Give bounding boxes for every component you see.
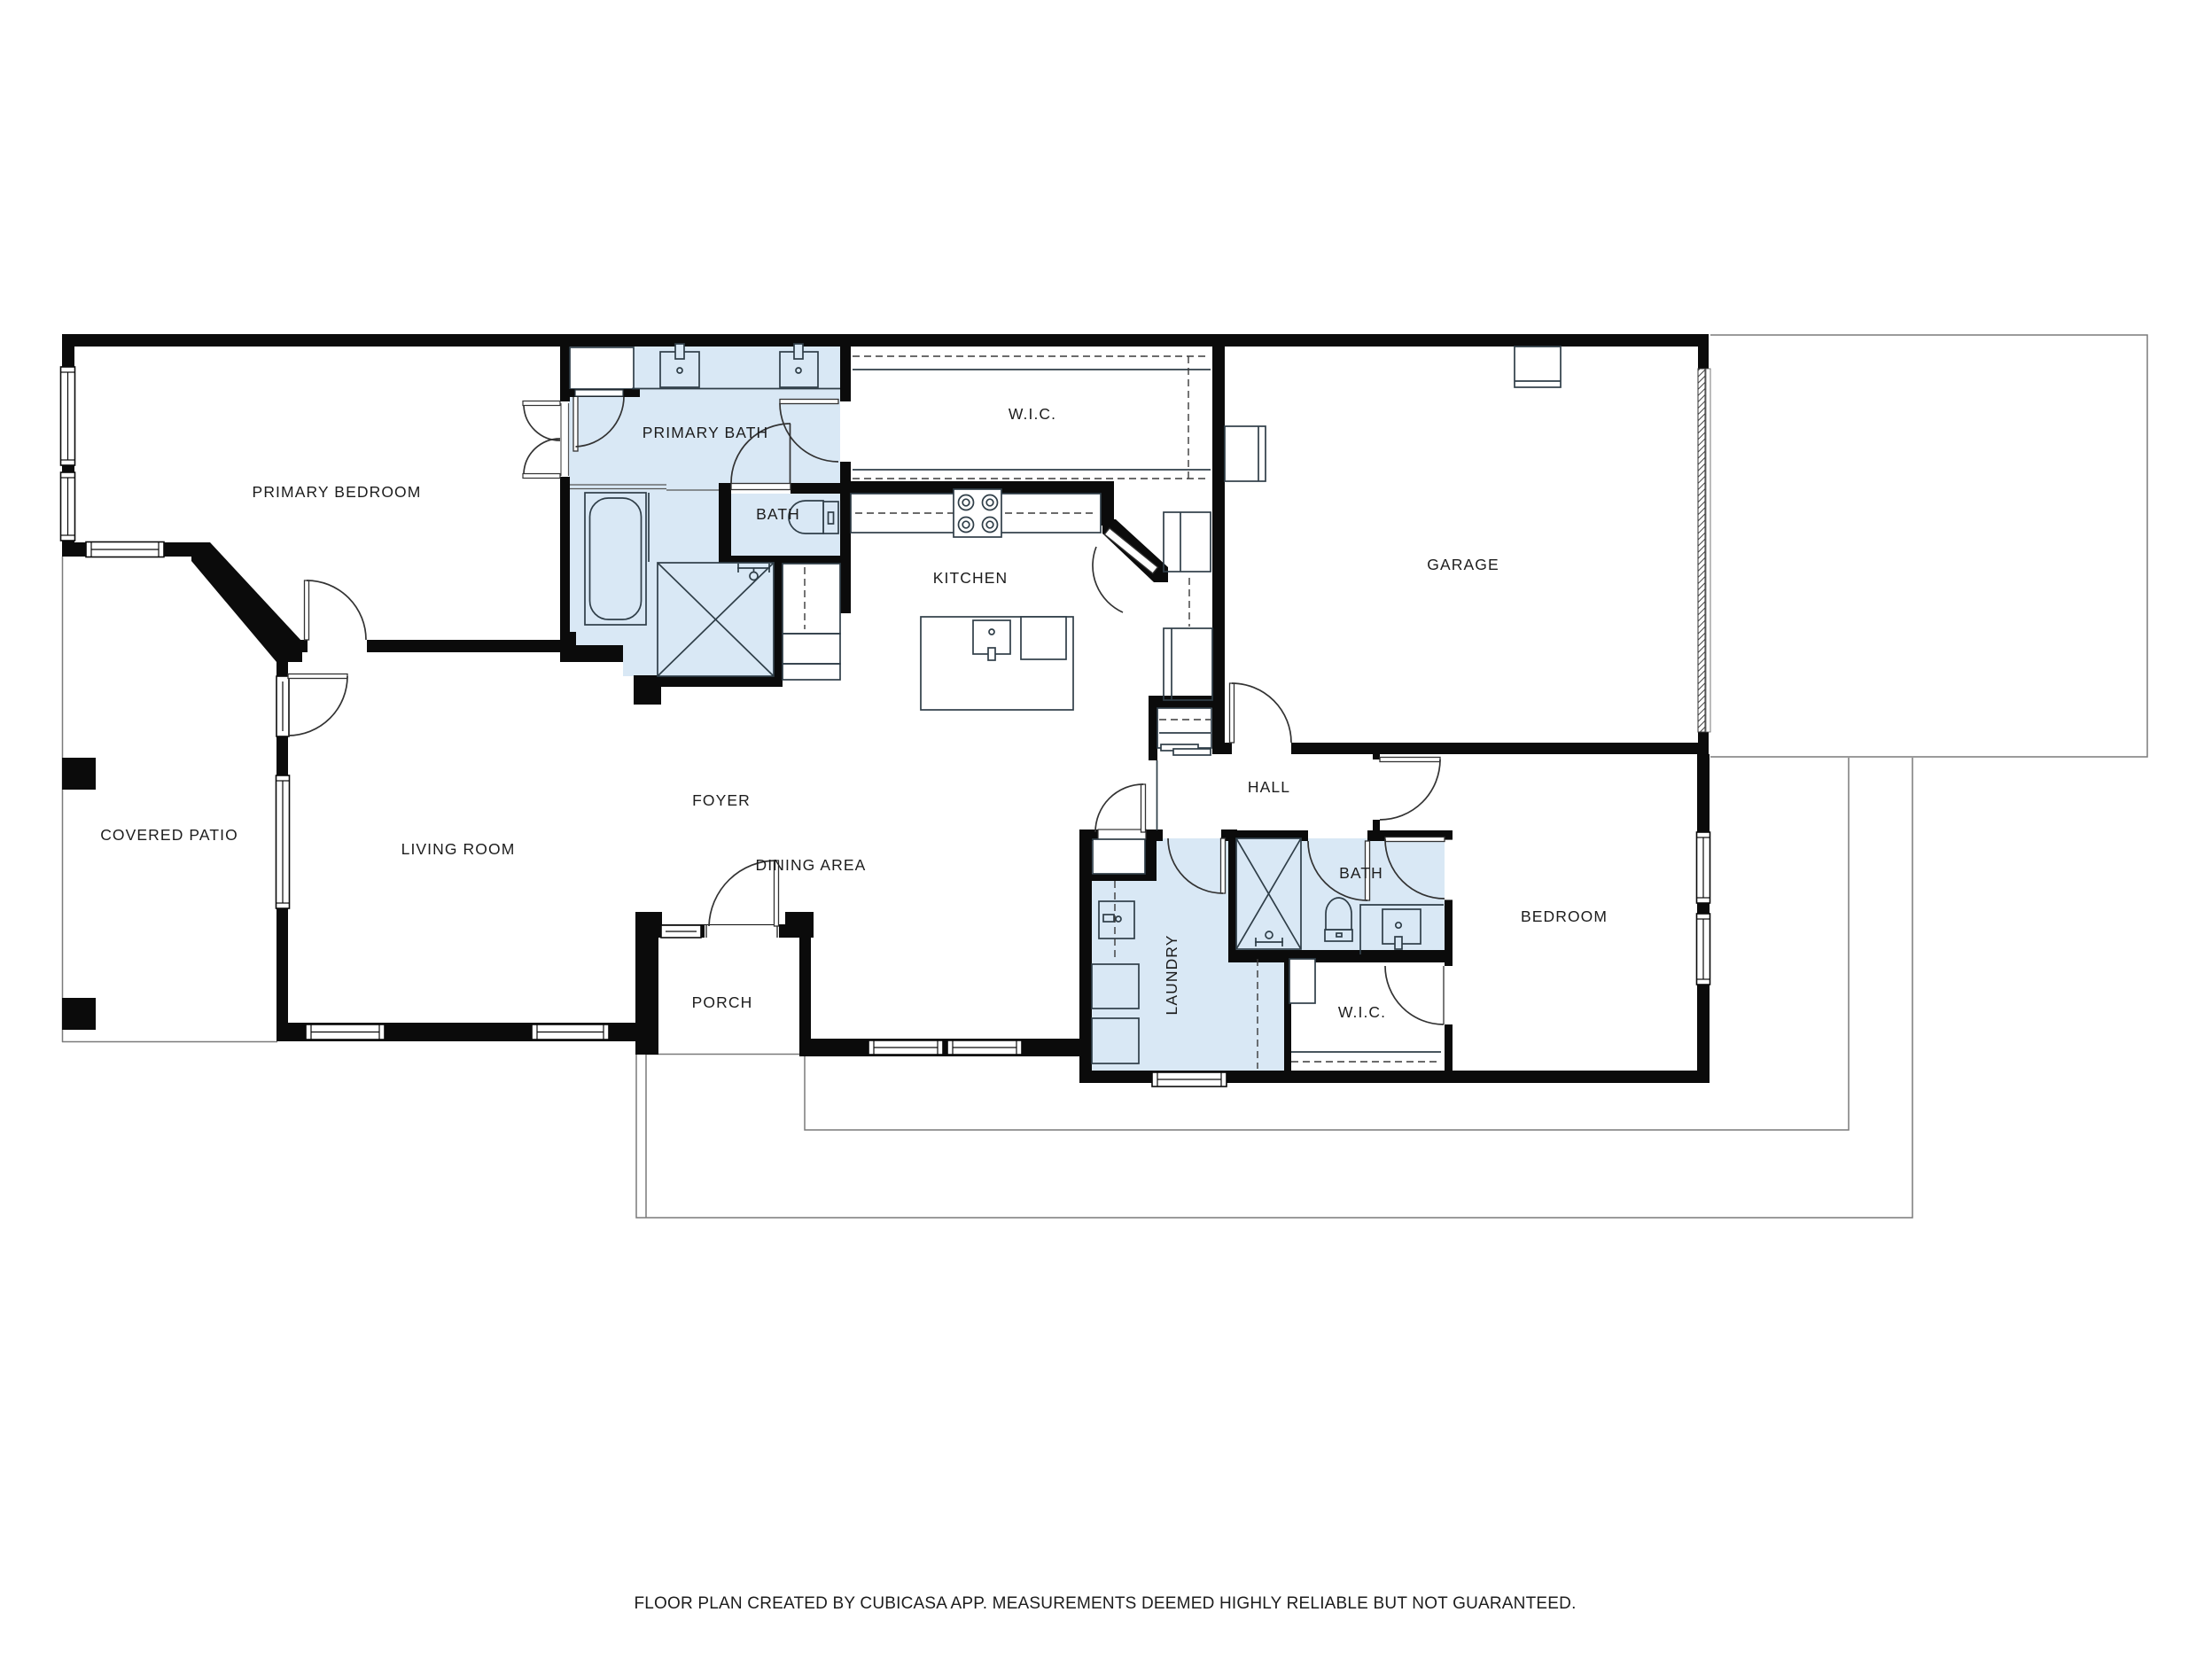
svg-text:W.I.C.: W.I.C. (1338, 1003, 1386, 1021)
svg-text:PORCH: PORCH (692, 993, 753, 1011)
svg-text:FOYER: FOYER (692, 791, 751, 809)
svg-text:LAUNDRY: LAUNDRY (1163, 934, 1180, 1015)
svg-text:BATH: BATH (756, 505, 800, 523)
svg-text:BEDROOM: BEDROOM (1521, 907, 1608, 925)
svg-text:DINING AREA: DINING AREA (756, 856, 867, 874)
svg-text:KITCHEN: KITCHEN (933, 569, 1009, 587)
svg-text:W.I.C.: W.I.C. (1009, 405, 1056, 423)
svg-text:GARAGE: GARAGE (1427, 556, 1499, 573)
svg-text:COVERED PATIO: COVERED PATIO (100, 826, 238, 844)
svg-text:FLOOR PLAN CREATED BY CUBICASA: FLOOR PLAN CREATED BY CUBICASA APP. MEAS… (634, 1594, 1576, 1613)
svg-text:BATH: BATH (1339, 864, 1383, 882)
svg-text:PRIMARY BATH: PRIMARY BATH (643, 424, 769, 441)
svg-text:HALL: HALL (1248, 778, 1290, 796)
svg-text:PRIMARY BEDROOM: PRIMARY BEDROOM (253, 483, 422, 501)
svg-text:LIVING ROOM: LIVING ROOM (401, 840, 516, 858)
